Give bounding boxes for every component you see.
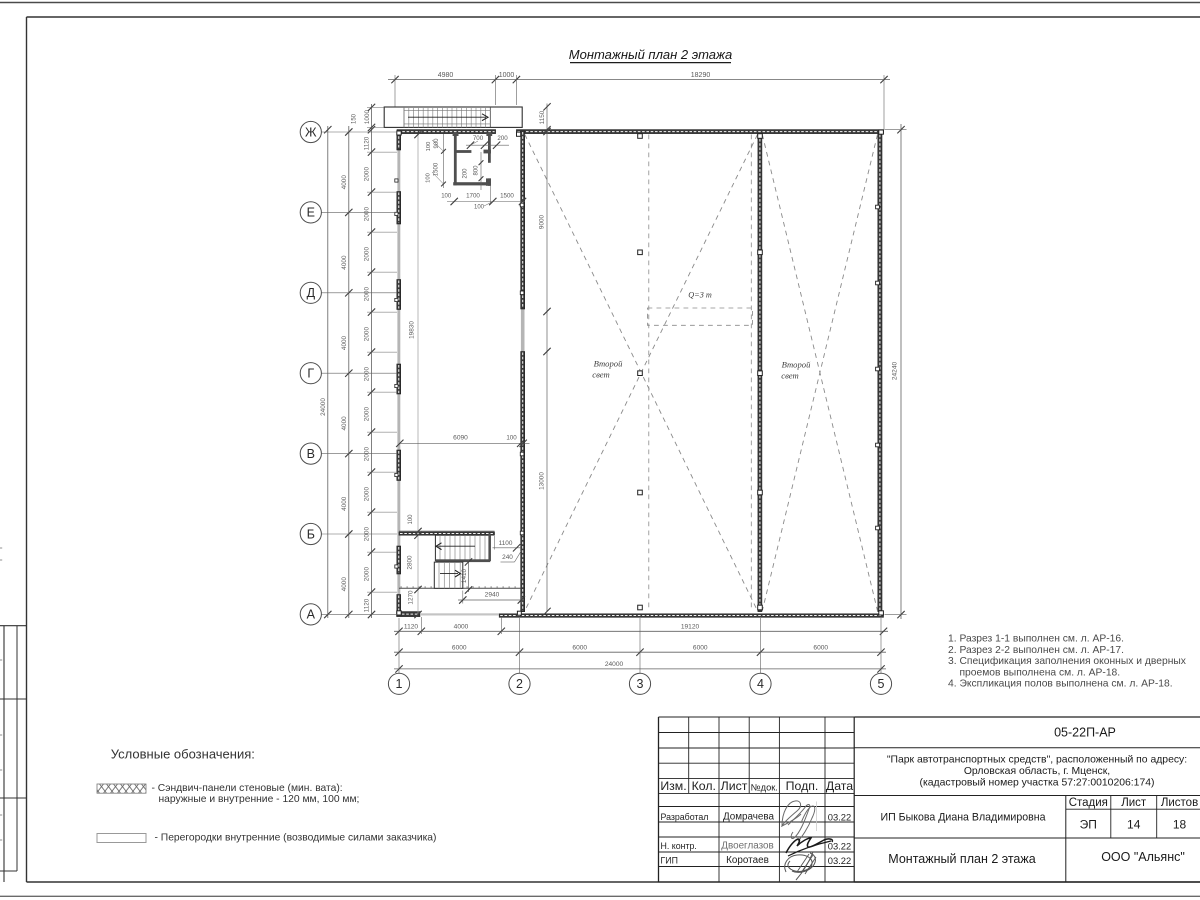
svg-text:100: 100 xyxy=(426,142,432,152)
svg-text:Монтажный план 2 этажа: Монтажный план 2 этажа xyxy=(569,47,732,62)
svg-text:Листов: Листов xyxy=(1161,797,1198,809)
svg-text:1700: 1700 xyxy=(466,193,480,200)
svg-text:1500: 1500 xyxy=(500,193,514,200)
svg-text:ЭП: ЭП xyxy=(1080,818,1097,832)
svg-text:100: 100 xyxy=(425,173,431,183)
svg-text:9000: 9000 xyxy=(539,214,546,229)
svg-text:100: 100 xyxy=(506,435,517,442)
svg-text:Дата: Дата xyxy=(826,779,853,793)
svg-text:4. Экспликация полов выполнена: 4. Экспликация полов выполнена см. л. АР… xyxy=(948,679,1173,690)
svg-text:- Перегородки внутренние (возв: - Перегородки внутренние (возводимые сил… xyxy=(155,833,437,844)
svg-text:№док.: №док. xyxy=(751,783,778,793)
svg-text:2000: 2000 xyxy=(363,487,370,502)
svg-text:Монтажный план 2 этажа: Монтажный план 2 этажа xyxy=(888,852,1035,866)
svg-text:Орловская область, г. Мценск,: Орловская область, г. Мценск, xyxy=(964,765,1110,777)
svg-text:ИП Быкова Диана Владимировна: ИП Быкова Диана Владимировна xyxy=(881,812,1046,824)
svg-text:19120: 19120 xyxy=(681,624,700,631)
svg-text:2. Разрез 2-2 выполнен см. л.: 2. Разрез 2-2 выполнен см. л. АР-17. xyxy=(948,645,1124,656)
svg-text:3: 3 xyxy=(637,677,644,691)
svg-text:5: 5 xyxy=(878,677,885,691)
svg-text:1000: 1000 xyxy=(364,109,371,124)
svg-text:Второй: Второй xyxy=(594,359,623,369)
svg-text:2000: 2000 xyxy=(363,207,370,222)
svg-text:Разработал: Разработал xyxy=(661,812,709,822)
svg-text:проемов выполнена см. л. АР-18: проемов выполнена см. л. АР-18. xyxy=(948,667,1120,678)
svg-text:Стадия: Стадия xyxy=(1069,797,1108,809)
svg-text:Лист: Лист xyxy=(721,779,748,793)
svg-text:Ж: Ж xyxy=(305,125,317,139)
svg-text:Подп.: Подп. xyxy=(786,779,819,793)
svg-text:Д: Д xyxy=(307,286,316,300)
svg-text:200: 200 xyxy=(497,135,508,142)
svg-text:1100: 1100 xyxy=(499,540,513,547)
svg-text:4000: 4000 xyxy=(341,335,348,350)
svg-text:- Сэндвич-панели стеновые (мин: - Сэндвич-панели стеновые (мин. вата): xyxy=(152,783,343,794)
svg-text:1: 1 xyxy=(396,677,403,691)
svg-text:24240: 24240 xyxy=(892,362,899,381)
svg-text:18: 18 xyxy=(1173,818,1187,832)
svg-text:240: 240 xyxy=(502,554,513,561)
svg-text:2000: 2000 xyxy=(363,247,370,262)
svg-text:2000: 2000 xyxy=(363,287,370,302)
svg-text:4000: 4000 xyxy=(341,416,348,431)
svg-text:6000: 6000 xyxy=(813,644,828,651)
svg-text:6000: 6000 xyxy=(693,644,708,651)
svg-text:1410: 1410 xyxy=(461,568,468,583)
svg-text:Лист: Лист xyxy=(1121,797,1147,809)
svg-text:2800: 2800 xyxy=(407,555,414,570)
svg-text:(кадастровый номер участка 57:: (кадастровый номер участка 57:27:0010206… xyxy=(920,778,1155,789)
svg-text:24000: 24000 xyxy=(320,398,327,416)
svg-text:6000: 6000 xyxy=(452,644,467,651)
svg-text:4000: 4000 xyxy=(341,175,348,190)
svg-text:03.22: 03.22 xyxy=(828,812,851,823)
svg-text:1120: 1120 xyxy=(404,624,419,631)
svg-text:4000: 4000 xyxy=(454,624,469,631)
svg-text:150: 150 xyxy=(352,113,358,124)
svg-text:Второй: Второй xyxy=(782,360,811,370)
svg-text:200: 200 xyxy=(462,168,468,179)
svg-text:"Парк автотранспортных средств: "Парк автотранспортных средств", располо… xyxy=(887,755,1187,766)
svg-text:700: 700 xyxy=(473,135,484,142)
svg-text:2000: 2000 xyxy=(363,327,370,342)
svg-text:03.22: 03.22 xyxy=(828,855,851,866)
svg-text:03.22: 03.22 xyxy=(828,840,851,851)
svg-text:13000: 13000 xyxy=(539,472,546,490)
svg-text:18290: 18290 xyxy=(691,72,711,79)
svg-text:Н. контр.: Н. контр. xyxy=(661,841,697,851)
svg-text:1120: 1120 xyxy=(363,598,370,612)
svg-text:Изм.: Изм. xyxy=(660,779,686,793)
svg-text:2000: 2000 xyxy=(363,367,370,382)
svg-text:Кол.: Кол. xyxy=(692,779,716,793)
svg-text:6090: 6090 xyxy=(453,435,468,442)
svg-text:Условные обозначения:: Условные обозначения: xyxy=(111,747,255,762)
svg-text:ООО "Альянс": ООО "Альянс" xyxy=(1101,850,1185,864)
svg-text:1120: 1120 xyxy=(363,136,370,150)
svg-text:2940: 2940 xyxy=(485,592,500,599)
svg-text:800: 800 xyxy=(473,165,479,176)
svg-text:2000: 2000 xyxy=(363,567,370,582)
svg-text:2000: 2000 xyxy=(363,167,370,182)
svg-text:14: 14 xyxy=(1127,818,1141,832)
svg-text:1270: 1270 xyxy=(408,590,415,605)
svg-text:4000: 4000 xyxy=(341,255,348,270)
svg-text:2000: 2000 xyxy=(363,407,370,422)
svg-text:4000: 4000 xyxy=(341,496,348,511)
svg-text:6000: 6000 xyxy=(572,644,587,651)
svg-text:Q=3 т: Q=3 т xyxy=(688,291,712,300)
svg-text:1. Разрез 1-1 выполнен см. л.: 1. Разрез 1-1 выполнен см. л. АР-16. xyxy=(948,634,1124,645)
svg-text:2: 2 xyxy=(516,677,523,691)
svg-text:1150: 1150 xyxy=(539,110,546,124)
svg-text:Е: Е xyxy=(307,206,315,220)
svg-text:3. Спецификация заполнения око: 3. Спецификация заполнения оконных и две… xyxy=(948,655,1187,667)
svg-text:свет: свет xyxy=(781,371,798,381)
svg-text:А: А xyxy=(307,608,316,622)
svg-text:05-22П-АР: 05-22П-АР xyxy=(1054,726,1116,740)
svg-text:Домрачева: Домрачева xyxy=(723,812,775,823)
svg-text:Г: Г xyxy=(307,367,314,381)
svg-text:Двоеглазов: Двоеглазов xyxy=(721,840,774,851)
svg-text:4980: 4980 xyxy=(438,72,454,79)
svg-text:В: В xyxy=(307,447,315,461)
svg-text:1000: 1000 xyxy=(499,72,515,79)
svg-text:4000: 4000 xyxy=(341,577,348,592)
svg-text:100: 100 xyxy=(441,194,452,200)
svg-text:Коротаев: Коротаев xyxy=(726,855,769,866)
svg-text:ГИП: ГИП xyxy=(661,855,678,865)
svg-text:24000: 24000 xyxy=(605,661,624,668)
svg-text:19830: 19830 xyxy=(409,321,416,339)
svg-text:100: 100 xyxy=(408,514,414,525)
svg-text:наружные и внутренние - 120 мм: наружные и внутренние - 120 мм, 100 мм; xyxy=(159,794,360,805)
svg-text:100: 100 xyxy=(474,205,485,211)
svg-text:Б: Б xyxy=(307,527,315,541)
svg-text:4: 4 xyxy=(757,677,764,691)
svg-text:свет: свет xyxy=(592,370,609,380)
